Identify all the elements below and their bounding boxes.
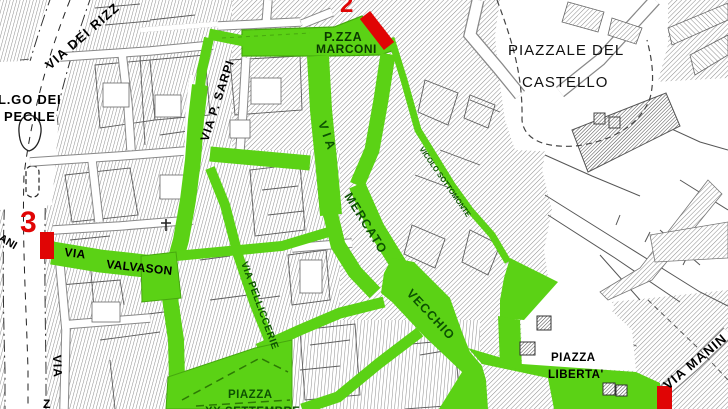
svg-text:LIBERTA': LIBERTA' [548, 369, 604, 381]
svg-text:Z: Z [43, 397, 50, 409]
svg-text:PIAZZALE DEL: PIAZZALE DEL [508, 42, 624, 59]
svg-text:2: 2 [340, 0, 353, 18]
svg-text:VIA: VIA [50, 355, 65, 378]
svg-text:PIAZZA: PIAZZA [228, 389, 273, 401]
svg-text:PECILE: PECILE [4, 109, 56, 124]
svg-text:VIA: VIA [64, 245, 87, 262]
svg-text:PIAZZA: PIAZZA [551, 352, 596, 364]
svg-text:CASTELLO: CASTELLO [522, 74, 608, 91]
svg-text:L.GO DEI: L.GO DEI [0, 92, 61, 107]
svg-text:MARCONI: MARCONI [316, 42, 377, 56]
svg-text:3: 3 [20, 206, 37, 239]
